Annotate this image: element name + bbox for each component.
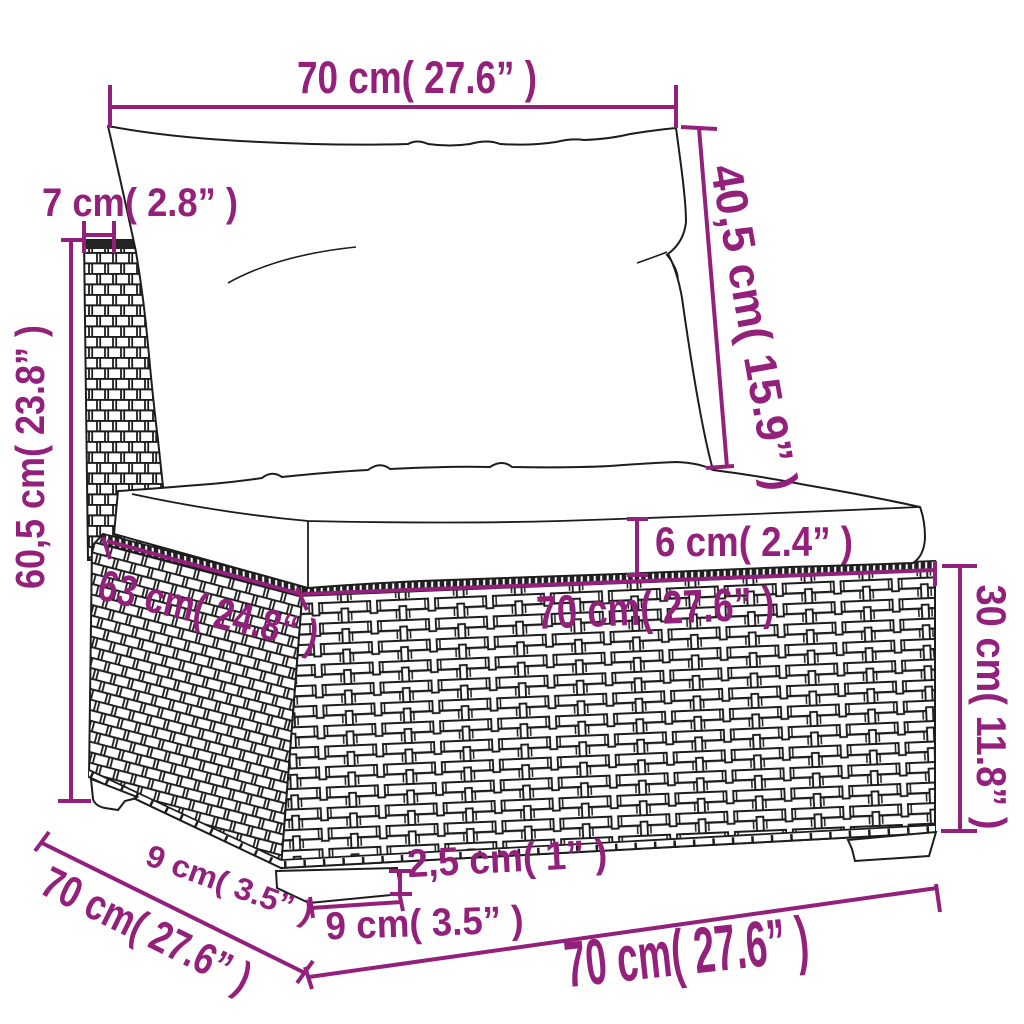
svg-text:7 cm( 2.8” ): 7 cm( 2.8” )	[42, 181, 238, 225]
svg-text:6 cm( 2.4” ): 6 cm( 2.4” )	[655, 518, 853, 565]
svg-text:9 cm( 3.5” ): 9 cm( 3.5” )	[325, 899, 524, 949]
svg-text:70 cm( 27.6” ): 70 cm( 27.6” )	[297, 52, 537, 103]
svg-text:30 cm( 11.8” ): 30 cm( 11.8” )	[968, 585, 1015, 830]
svg-text:60,5 cm( 23.8” ): 60,5 cm( 23.8” )	[7, 325, 53, 589]
svg-text:70 cm( 27.6” ): 70 cm( 27.6” )	[535, 576, 775, 639]
